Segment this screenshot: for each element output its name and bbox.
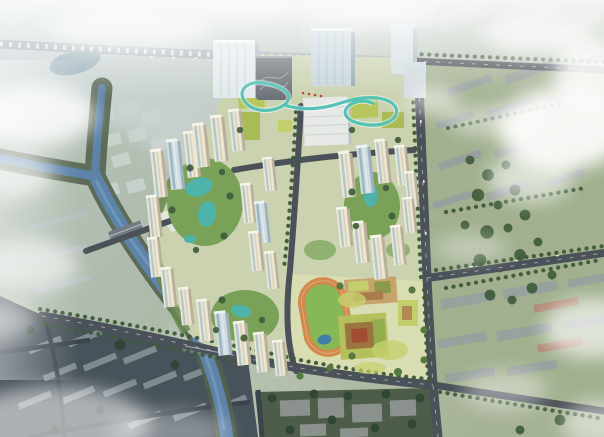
- school-courtyard: [351, 328, 368, 343]
- south-village-block: Southern village block: [255, 388, 436, 437]
- left-haze: [0, 60, 80, 380]
- aerial-rendering: Bird's-eye rendering of a riverside high…: [0, 0, 604, 437]
- scene-canvas: Bird's-eye rendering of a riverside high…: [0, 0, 604, 437]
- top-haze: [0, 0, 604, 100]
- school-building-east: [398, 300, 418, 326]
